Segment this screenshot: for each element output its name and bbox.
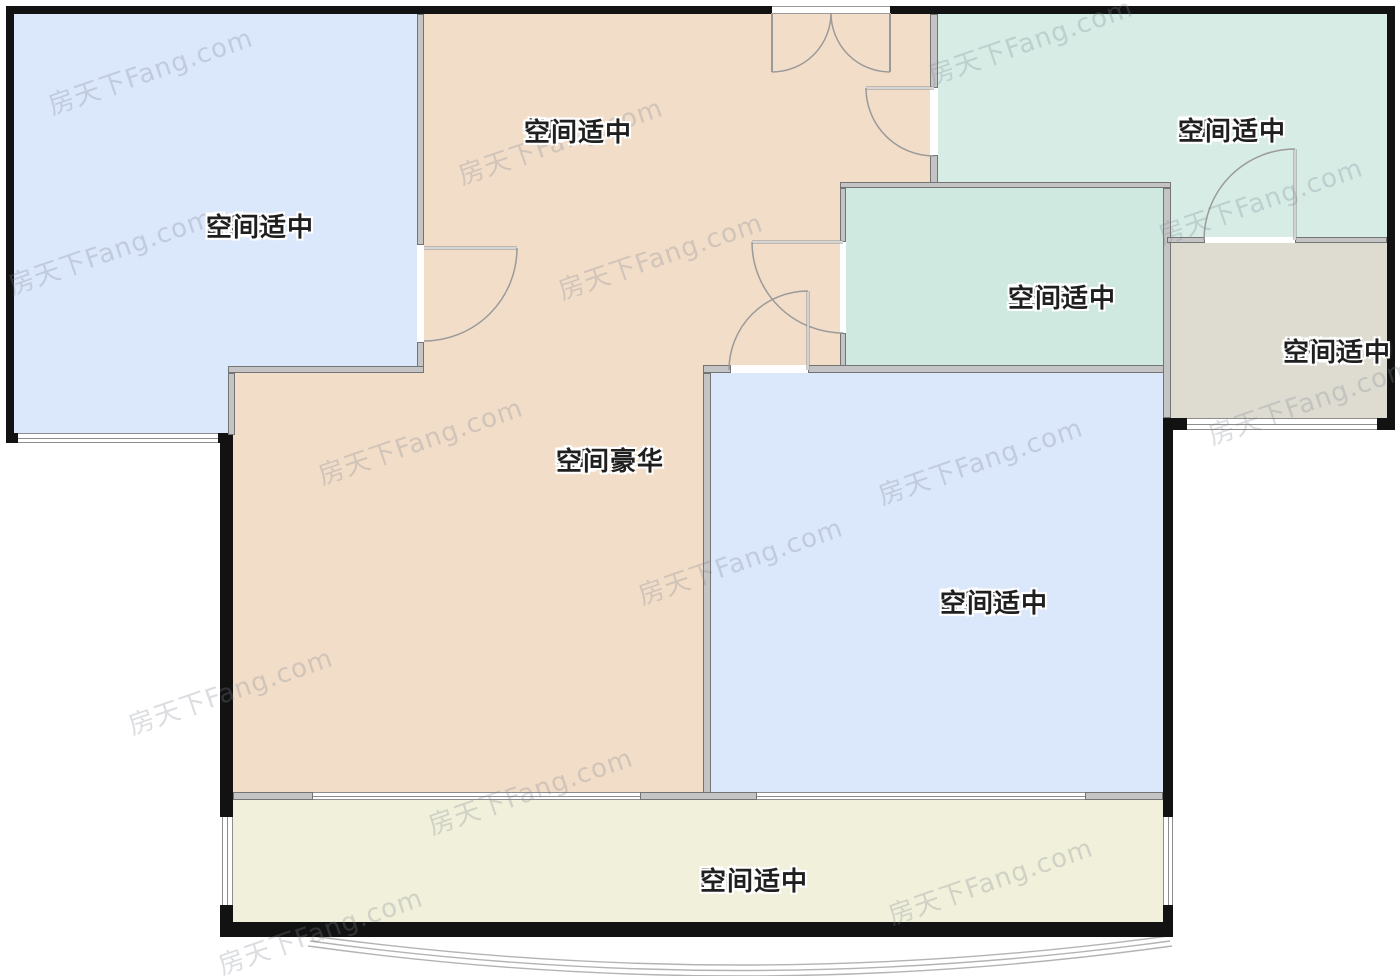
- exterior-wall-bedrooma-right: [1163, 430, 1173, 817]
- wall-bathroom-left-lower: [840, 333, 846, 367]
- room-condition: 空间适中: [206, 212, 314, 245]
- room-kitchen-annex: [1167, 182, 1387, 243]
- exterior-wall-stub-bedroomb-left: [6, 433, 18, 443]
- room-bathroom: [846, 188, 1163, 368]
- room-condition: 空间适中: [1008, 283, 1116, 316]
- balcony-sliding-door: [313, 792, 640, 800]
- entrance-door-opening: [772, 6, 890, 14]
- room-storage: [1171, 243, 1387, 419]
- exterior-wall-top-left: [6, 6, 772, 14]
- kitchen-door-opening: [930, 88, 938, 155]
- exterior-wall-stub-storage-left: [1163, 418, 1187, 430]
- balcony-right-window: [1163, 817, 1173, 905]
- wall-bedroomb-lobe-right: [228, 373, 235, 435]
- room-condition: 空间适中: [940, 588, 1048, 621]
- exterior-wall-living-left: [220, 433, 233, 817]
- wall-storage-top-left: [1167, 237, 1205, 243]
- floor-plan: 卧室B 空间适中 餐厅 空间适中 厨房 空间适中 卫生间 空间适中 储物间 空间…: [0, 0, 1400, 976]
- wall-bathroom-left-upper: [840, 188, 846, 242]
- wall-bathroom-top: [840, 182, 1171, 188]
- exterior-wall-left: [6, 6, 14, 443]
- room-living: [233, 367, 703, 797]
- room-bedroom-b: [13, 13, 418, 369]
- balcony-curve-1: [312, 936, 1168, 965]
- storage-door-opening: [1205, 237, 1295, 243]
- room-condition: 空间适中: [1283, 337, 1391, 370]
- balcony-left-window: [222, 817, 233, 905]
- bedroom-b-door-opening: [417, 245, 424, 342]
- wall-bedroomb-bottom: [228, 366, 424, 373]
- wall-bedrooma-top: [808, 365, 1167, 373]
- wall-storage-top-right: [1295, 237, 1387, 243]
- wall-bathroom-storage: [1163, 188, 1171, 418]
- wall-balcony-top-left: [233, 792, 313, 800]
- exterior-wall-balcony-right-corner: [1163, 905, 1173, 937]
- wall-bedroomb-right-upper: [417, 14, 424, 245]
- exterior-wall-balcony-bottom: [225, 922, 1173, 937]
- wall-balcony-top-right: [1085, 792, 1163, 800]
- room-condition: 空间豪华: [556, 446, 664, 479]
- wall-living-bedrooma: [703, 373, 711, 793]
- room-condition: 空间适中: [1178, 116, 1286, 149]
- room-hall: [424, 182, 840, 372]
- wall-balcony-top-middle: [640, 792, 757, 800]
- wall-bedrooma-top-left-stub: [703, 365, 731, 373]
- room-bedroom-b-lobe: [13, 367, 229, 435]
- exterior-wall-top-right: [890, 6, 1395, 14]
- bedroom-b-window: [18, 433, 218, 443]
- room-condition: 空间适中: [700, 866, 808, 899]
- room-dining: [424, 14, 930, 184]
- bedroom-a-window: [757, 792, 1085, 800]
- bathroom-door-opening: [840, 242, 846, 333]
- room-bedroom-a: [711, 373, 1163, 793]
- bedroom-a-door-opening: [731, 365, 808, 373]
- room-balcony: [233, 800, 1163, 923]
- balcony-curve-3: [308, 946, 1172, 976]
- storage-window: [1187, 418, 1377, 430]
- room-condition: 空间适中: [524, 117, 632, 150]
- room-kitchen: [938, 14, 1387, 184]
- balcony-curve-2: [310, 941, 1170, 971]
- wall-dining-kitchen-upper: [930, 14, 938, 88]
